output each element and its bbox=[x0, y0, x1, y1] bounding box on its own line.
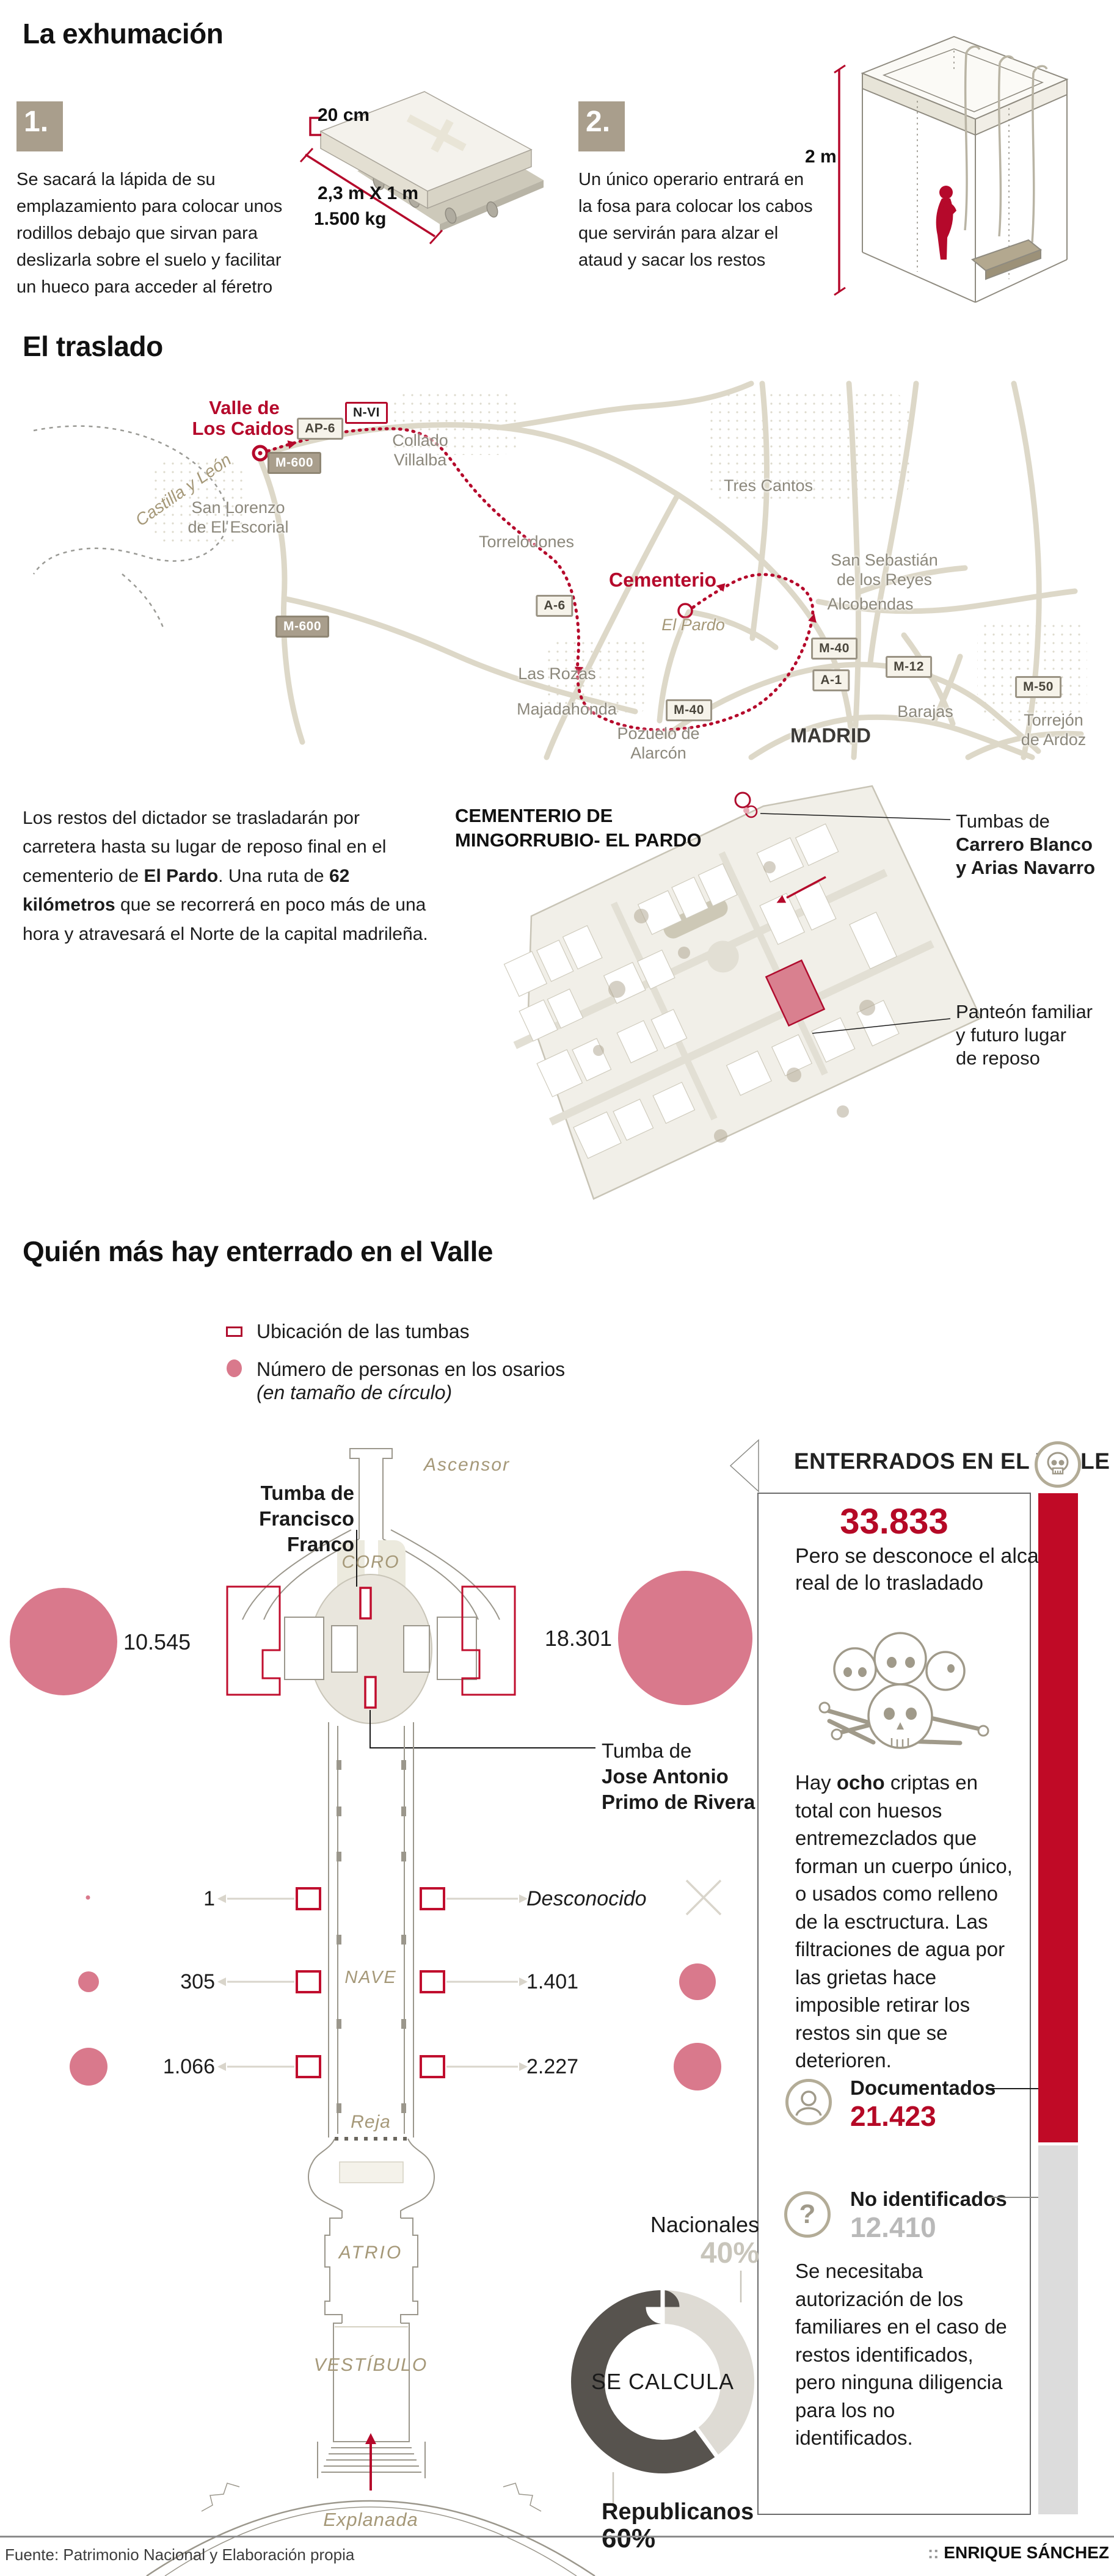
legend-osarios-label: Número de personas en los osarios bbox=[257, 1358, 565, 1381]
connector-unidentified bbox=[988, 2197, 1038, 2198]
label-tumbas-1: Tumbas de bbox=[956, 810, 1050, 833]
road-shield-a1: A-1 bbox=[812, 669, 850, 691]
step-1-text: Se sacará la lápida de su emplazamiento … bbox=[16, 166, 291, 300]
osario-r3-right: 2.227 bbox=[526, 2055, 578, 2079]
section-title-traslado: El traslado bbox=[23, 330, 163, 363]
osario-r2-right: 1.401 bbox=[526, 1970, 578, 1994]
map-town-sanlorenzo-2: de El Escorial bbox=[187, 518, 288, 537]
road-shield-m12: M-12 bbox=[886, 656, 932, 678]
map-town-torrelodones: Torrelodones bbox=[479, 533, 574, 552]
step-2-text: Un único operario entrará en la fosa par… bbox=[578, 166, 820, 274]
legend-tumbas-icon bbox=[226, 1326, 242, 1337]
documented-label: Documentados bbox=[850, 2076, 996, 2100]
label-panteon-1: Panteón familiar bbox=[956, 1000, 1093, 1024]
connector-documented bbox=[988, 2088, 1038, 2089]
footer-credit: :: ENRIQUE SÁNCHEZ bbox=[928, 2543, 1109, 2563]
osario-right-top: 18.301 bbox=[525, 1626, 612, 1651]
label-panteon-3: de reposo bbox=[956, 1047, 1040, 1070]
panel-callout-tail bbox=[724, 1435, 761, 1496]
label-panteon-2: y futuro lugar bbox=[956, 1024, 1066, 1047]
map-town-alcobendas: Alcobendas bbox=[827, 595, 913, 614]
legend-tumbas-label: Ubicación de las tumbas bbox=[257, 1320, 470, 1343]
documented-value: 21.423 bbox=[850, 2100, 936, 2133]
slab-size-label: 2,3 m X 1 m bbox=[318, 183, 418, 204]
cemetery-title-1: CEMENTERIO DE bbox=[455, 804, 613, 828]
unidentified-question-icon: ? bbox=[784, 2191, 831, 2238]
osario-r2-left: 305 bbox=[142, 1970, 215, 1994]
map-town-torrejon-2: de Ardoz bbox=[1021, 730, 1087, 750]
map-origin-label-2: Los Caidos bbox=[192, 418, 294, 440]
slab-thickness-label: 20 cm bbox=[318, 105, 370, 126]
joseantonio-tomb-label: Tumba de Jose Antonio Primo de Rivera bbox=[602, 1738, 755, 1816]
plan-label-reja: Reja bbox=[351, 2112, 391, 2133]
unidentified-value: 12.410 bbox=[850, 2211, 936, 2244]
cemetery-title-2: MINGORRUBIO- EL PARDO bbox=[455, 828, 702, 853]
step-2-badge: 2. bbox=[578, 101, 625, 151]
donut-label-republicanos: Republicanos bbox=[602, 2499, 754, 2525]
map-town-collado-2: Villalba bbox=[394, 451, 447, 470]
bar-unidentified bbox=[1038, 2145, 1078, 2514]
map-town-sansebastian-1: San Sebastián bbox=[831, 551, 938, 570]
crypt-illustration bbox=[826, 15, 1082, 321]
plan-label-nave: NAVE bbox=[344, 1968, 396, 1988]
unidentified-label: No identificados bbox=[850, 2188, 1007, 2211]
label-tumbas-2: Carrero Blanco bbox=[956, 833, 1093, 856]
donut-label-nacionales: Nacionales bbox=[650, 2212, 759, 2238]
legend-osarios-icon bbox=[227, 1359, 242, 1377]
road-shield-m40-a: M-40 bbox=[666, 699, 712, 721]
section-title-valle: Quién más hay enterrado en el Valle bbox=[23, 1235, 493, 1268]
panel-total: 33.833 bbox=[757, 1501, 1031, 1542]
donut-pct-nacionales: 40% bbox=[701, 2236, 759, 2270]
panel-total-note: Pero se desconoce el alcance real de lo … bbox=[795, 1543, 1072, 1596]
map-town-collado-1: Collado bbox=[392, 431, 448, 451]
skulls-illustration bbox=[800, 1617, 1002, 1764]
worker-figure-icon bbox=[936, 186, 956, 260]
coffin-icon bbox=[972, 240, 1041, 279]
infographic-page: { "exhumacion": { "title": "La exhumació… bbox=[0, 0, 1114, 2576]
documented-person-icon bbox=[785, 2079, 832, 2125]
road-shield-m50: M-50 bbox=[1015, 676, 1061, 698]
donut-pct-republicanos: 60% bbox=[602, 2523, 655, 2554]
bar-documented bbox=[1038, 1493, 1078, 2142]
osario-r1-left: 1 bbox=[142, 1887, 215, 1911]
road-shield-m40-b: M-40 bbox=[811, 638, 857, 660]
road-shield-a6: A-6 bbox=[536, 595, 573, 617]
map-town-majadahonda: Majadahonda bbox=[517, 700, 617, 719]
map-origin-label-1: Valle de bbox=[209, 397, 279, 419]
step-1-badge: 1. bbox=[16, 101, 63, 151]
pilasters bbox=[337, 1760, 406, 2113]
road-shield-m600-b: M-600 bbox=[275, 616, 329, 638]
section-title-exhumacion: La exhumación bbox=[23, 17, 223, 50]
slab-weight-label: 1.500 kg bbox=[314, 209, 386, 230]
map-town-sansebastian-2: de los Reyes bbox=[837, 570, 932, 590]
franco-tomb-marker bbox=[360, 1588, 371, 1618]
plan-label-vestibulo: VESTÍBULO bbox=[314, 2355, 428, 2376]
osario-left-top: 10.545 bbox=[123, 1629, 191, 1655]
map-town-elpardo: El Pardo bbox=[661, 616, 725, 635]
skull-badge-icon bbox=[1035, 1441, 1081, 1488]
map-town-trescantos: Tres Cantos bbox=[724, 476, 813, 496]
tombs-marker-icon bbox=[735, 793, 750, 807]
footer-source: Fuente: Patrimonio Nacional y Elaboració… bbox=[5, 2545, 354, 2564]
osario-r3-left: 1.066 bbox=[142, 2055, 215, 2079]
label-tumbas-3: y Arias Navarro bbox=[956, 856, 1095, 879]
osario-r1-right: Desconocido bbox=[526, 1887, 647, 1911]
plan-label-explanada: Explanada bbox=[323, 2509, 418, 2531]
map-town-pozuelo-1: Pozuelo de bbox=[617, 724, 699, 744]
map-city-madrid: MADRID bbox=[790, 724, 871, 748]
road-shield-ap6: AP-6 bbox=[297, 418, 343, 440]
joseantonio-tomb-marker bbox=[365, 1677, 376, 1708]
road-shield-m600-a: M-600 bbox=[268, 452, 321, 474]
legend-osarios-note: (en tamaño de círculo) bbox=[257, 1381, 452, 1404]
franco-tomb-label: Tumba de Francisco Franco bbox=[195, 1480, 354, 1558]
map-town-pozuelo-2: Alarcón bbox=[630, 744, 686, 763]
map-town-lasrozas: Las Rozas bbox=[518, 664, 596, 684]
plan-label-ascensor: Ascensor bbox=[424, 1455, 510, 1475]
panel-nota: Se necesitaba autorización de los famili… bbox=[795, 2257, 1010, 2452]
traslado-paragraph: Los restos del dictador se trasladarán p… bbox=[23, 804, 432, 948]
map-town-sanlorenzo-1: San Lorenzo bbox=[191, 498, 285, 518]
footer-rule bbox=[0, 2536, 1114, 2538]
panel-criptas-text: Hay ocho criptas en total con huesos ent… bbox=[795, 1769, 1013, 2075]
map-town-barajas: Barajas bbox=[897, 702, 953, 722]
map-destination-label: Cementerio bbox=[609, 569, 716, 592]
unknown-x-icon bbox=[686, 1880, 721, 1915]
donut-center-label: SE CALCULA bbox=[591, 2369, 734, 2395]
road-shield-nvi: N-VI bbox=[345, 402, 388, 424]
map-town-torrejon-1: Torrejón bbox=[1024, 711, 1083, 730]
plan-label-atrio: ATRIO bbox=[339, 2243, 402, 2263]
